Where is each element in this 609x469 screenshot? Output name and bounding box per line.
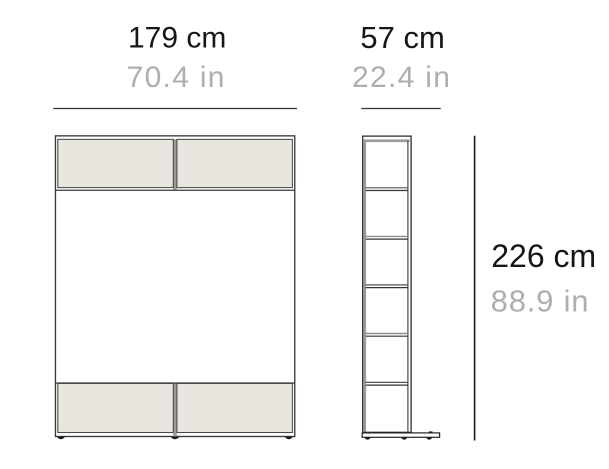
svg-text:88.9 in: 88.9 in — [491, 284, 590, 319]
svg-text:22.4 in: 22.4 in — [352, 61, 451, 94]
svg-text:70.4 in: 70.4 in — [127, 61, 226, 94]
svg-text:226 cm: 226 cm — [491, 238, 596, 274]
svg-text:179 cm: 179 cm — [128, 22, 226, 55]
svg-text:57 cm: 57 cm — [360, 20, 444, 55]
